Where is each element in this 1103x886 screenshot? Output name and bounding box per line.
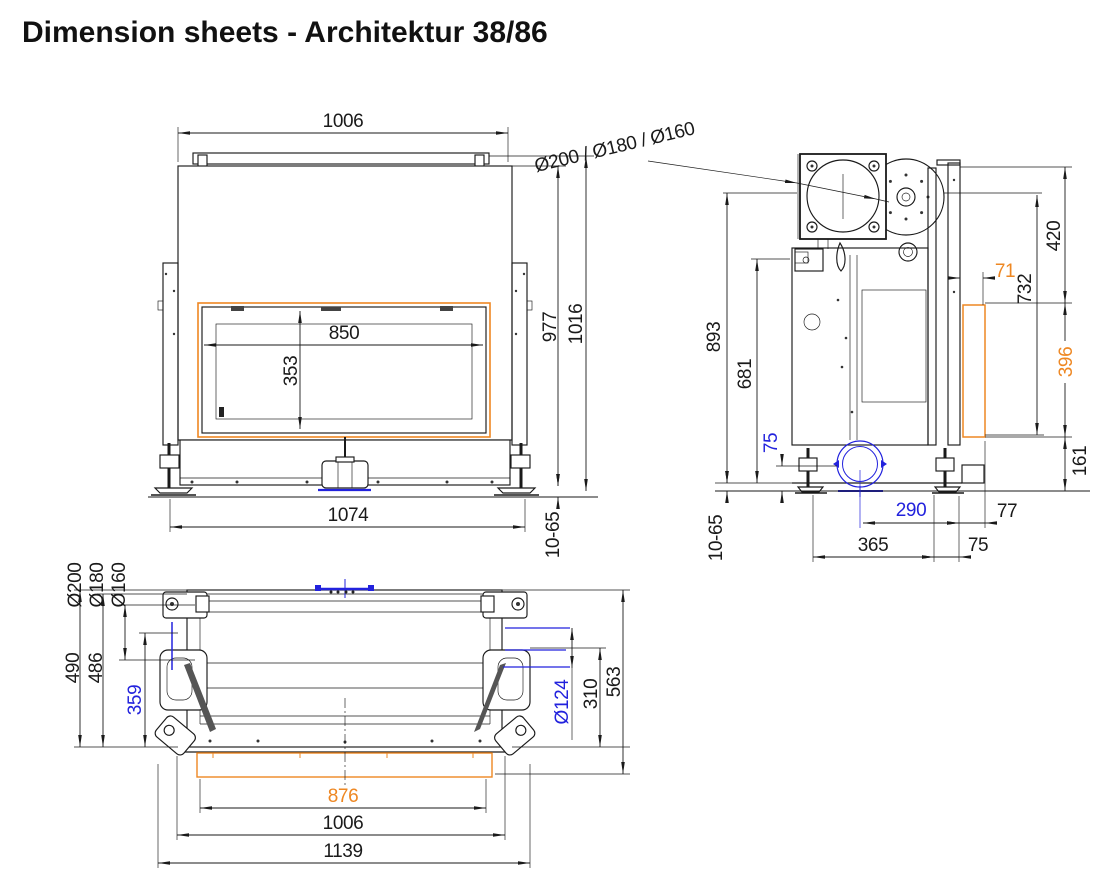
dim-front-width-base: 1074 — [328, 505, 370, 526]
dim-side-flue-center-height: 893 — [704, 322, 725, 353]
plan-view: Ø200 Ø180 Ø160 490 486 359 Ø124 310 — [63, 563, 630, 868]
dim-side-glass-offset: 71 — [995, 261, 1015, 282]
dim-side-plinth-height: 161 — [1070, 446, 1091, 477]
dim-side-feet-range: 10-65 — [706, 515, 727, 562]
dim-side-feet-size: 75 — [968, 535, 988, 556]
dim-plan-depth-2: 486 — [86, 653, 107, 684]
plan-body — [187, 590, 502, 747]
side-body — [792, 248, 928, 445]
rear-panel — [948, 163, 960, 445]
front-view: 1006 850 353 977 1016 10-65 1074 — [148, 111, 598, 558]
dim-plan-depth-1: 490 — [63, 653, 84, 684]
side-glass-edge — [963, 305, 985, 437]
dim-front-feet-range: 10-65 — [543, 512, 564, 559]
dim-side-rear-gap: 77 — [997, 501, 1017, 522]
side-view: Ø200 / Ø180 / Ø160 893 681 75 10-65 290 … — [533, 118, 1091, 562]
dim-plan-depth-4: 310 — [581, 679, 602, 710]
plan-flue-dia-outer: Ø200 — [65, 563, 86, 608]
dim-plan-depth-3: 359 — [125, 685, 146, 716]
dim-front-height-total: 1016 — [566, 304, 587, 345]
dim-front-glass-width: 850 — [329, 323, 360, 344]
dim-plan-body-width: 1006 — [323, 813, 364, 834]
dim-plan-depth-total: 563 — [604, 667, 625, 698]
dim-side-depth-top: 420 — [1044, 221, 1065, 252]
logo-mark — [219, 407, 224, 417]
front-top-rail — [193, 153, 489, 164]
dim-front-height-body: 977 — [540, 312, 561, 343]
dim-plan-glass-width: 876 — [328, 786, 359, 807]
dim-front-width-top: 1006 — [323, 111, 364, 132]
dim-plan-total-width: 1139 — [323, 841, 362, 862]
dim-side-air-height: 75 — [761, 433, 782, 453]
dim-side-flue-to-glass-bottom: 732 — [1015, 274, 1036, 305]
dim-front-glass-height: 353 — [281, 356, 302, 387]
plan-flue-dia-mid: Ø180 — [87, 563, 108, 608]
plan-flue-dia-inner: Ø160 — [109, 563, 130, 608]
dim-side-feet-depth: 365 — [858, 535, 889, 556]
dim-side-firebox-height: 681 — [735, 359, 756, 390]
dim-plan-air-dia: Ø124 — [552, 679, 573, 725]
dim-side-air-offset: 290 — [896, 500, 927, 521]
dim-side-glass-height: 396 — [1056, 347, 1077, 378]
plan-glass — [197, 753, 492, 777]
flue-diameters-label: Ø200 / Ø180 / Ø160 — [533, 118, 697, 177]
dimension-sheet: Dimension sheets - Architektur 38/86 — [0, 0, 1103, 886]
dimension-drawing: 1006 850 353 977 1016 10-65 1074 — [0, 0, 1103, 886]
